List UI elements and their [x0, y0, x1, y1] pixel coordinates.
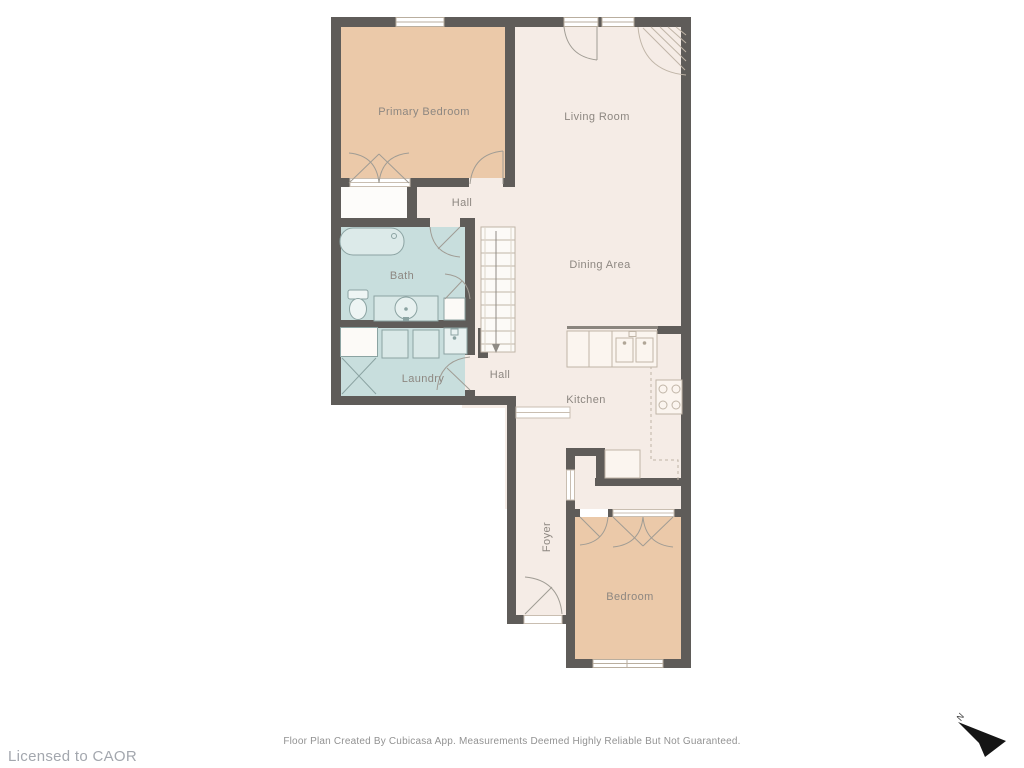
wall-bedroom-left-2	[566, 500, 575, 668]
wall-primary-bottom-2	[410, 178, 469, 187]
wall-left	[331, 17, 341, 405]
wall-closet-vertical	[596, 456, 605, 480]
room-label-bath: Bath	[390, 270, 414, 282]
floor-plan-page: { "rooms": [ {"label": "Primary Bedroom"…	[0, 0, 1024, 768]
north-label: N	[954, 712, 966, 723]
wall-bath-top-1	[331, 218, 430, 227]
wall-bedroom-top-2	[608, 509, 613, 517]
wall-foyer-left	[507, 405, 516, 624]
wall-right	[681, 17, 691, 668]
bedroom-floor	[575, 517, 681, 659]
wall-bath-top-2	[460, 218, 475, 227]
room-label-hall-upper: Hall	[452, 197, 473, 209]
wall-bottom-left	[331, 396, 516, 405]
room-label-dining-area: Dining Area	[569, 259, 630, 271]
room-label-living-room: Living Room	[564, 111, 630, 123]
wall-kitchen-stub	[657, 326, 691, 334]
wall-bedroom-closet-top	[595, 478, 691, 486]
wall-top-2	[444, 17, 564, 27]
wall-bath-bottom	[331, 320, 475, 328]
wall-bedroom-top-1	[566, 509, 580, 517]
laundry-floor	[341, 328, 465, 396]
wall-primary-bottom-1	[341, 178, 350, 187]
wall-closet-stub-top	[566, 448, 605, 456]
wall-bath-right	[465, 227, 475, 320]
room-label-foyer: Foyer	[541, 522, 553, 552]
wall-foyer-bottom-1	[507, 615, 524, 624]
wall-primary-living-divider	[505, 17, 515, 187]
disclaimer-text: Floor Plan Created By Cubicasa App. Meas…	[0, 736, 1024, 747]
wall-bedroom-top-3	[674, 509, 691, 517]
room-label-hall-lower: Hall	[490, 369, 511, 381]
license-text: Licensed to CAOR	[8, 748, 137, 765]
wall-primary-bottom-3	[503, 178, 511, 187]
wall-bedroom-bottom-1	[566, 659, 593, 668]
room-label-primary-bedroom: Primary Bedroom	[378, 106, 470, 118]
wall-laundry-right-2	[465, 390, 475, 405]
wall-stair-stub	[478, 328, 488, 358]
room-label-bedroom: Bedroom	[606, 591, 653, 603]
room-label-kitchen: Kitchen	[566, 394, 606, 406]
primary-bedroom-floor	[341, 27, 511, 178]
room-label-laundry: Laundry	[402, 373, 445, 385]
hall-closet-floor	[341, 187, 407, 218]
wall-top-3	[598, 17, 602, 27]
wall-laundry-right-1	[465, 328, 475, 355]
